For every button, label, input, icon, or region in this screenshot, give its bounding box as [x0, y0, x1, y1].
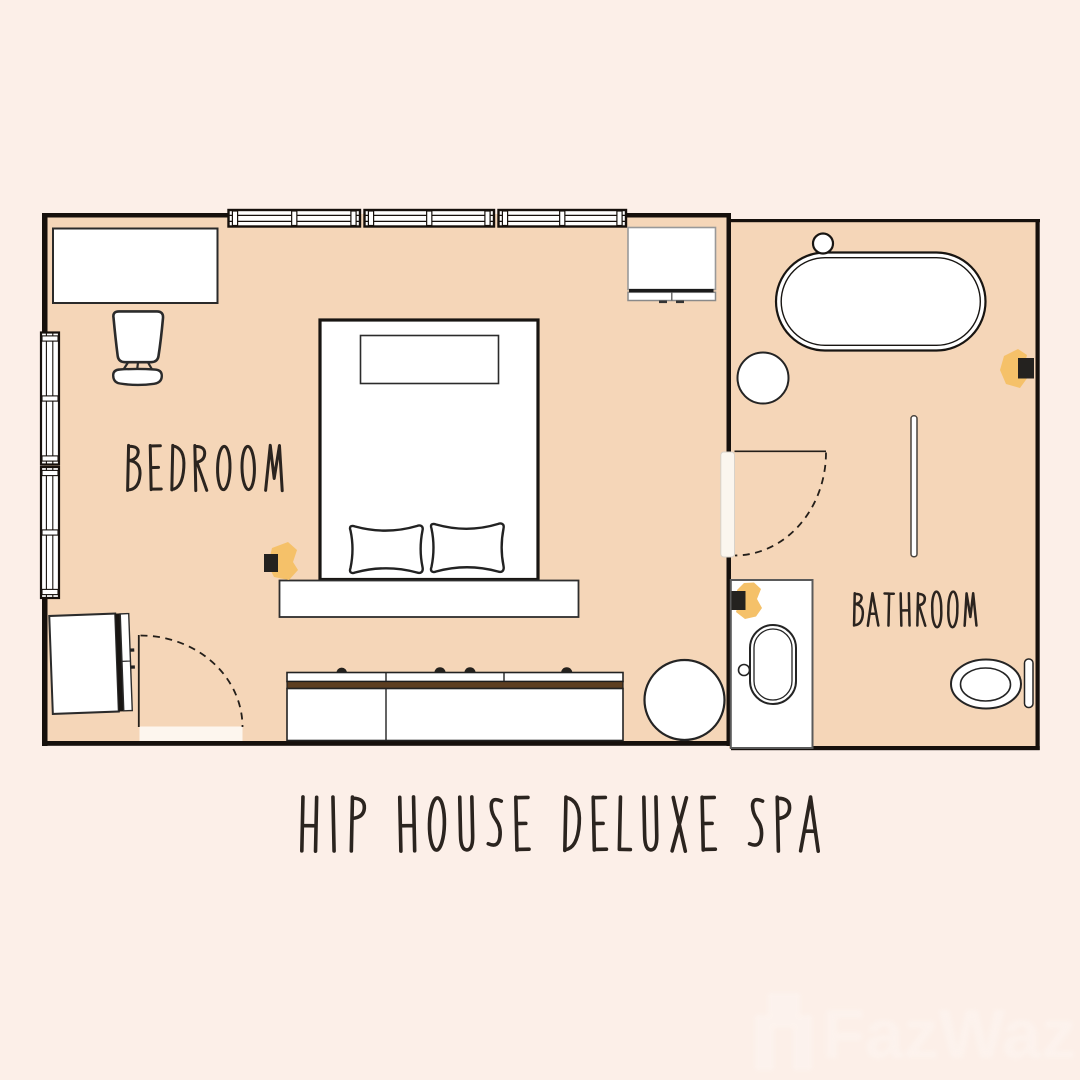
svg-text:FazWaz: FazWaz	[822, 995, 1076, 1073]
